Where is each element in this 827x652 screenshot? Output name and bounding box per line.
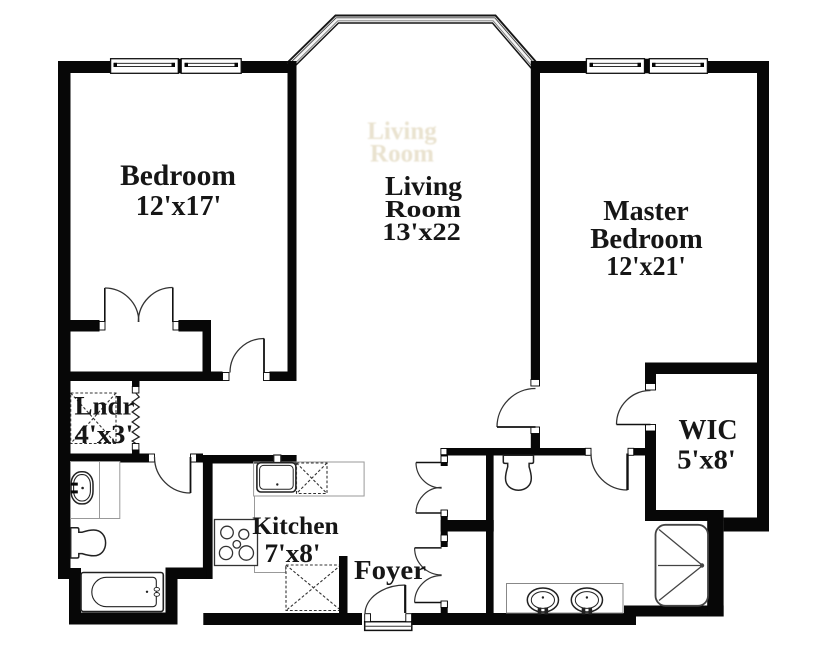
svg-text:7'x8': 7'x8' <box>265 539 321 568</box>
svg-text:WIC: WIC <box>678 415 737 446</box>
svg-text:Bedroom: Bedroom <box>120 160 236 192</box>
svg-text:13'x22: 13'x22 <box>382 217 461 246</box>
svg-text:4'x3': 4'x3' <box>75 420 134 449</box>
svg-text:Foyer: Foyer <box>354 555 426 585</box>
svg-text:5'x8': 5'x8' <box>677 444 736 475</box>
svg-text:12'x21': 12'x21' <box>606 251 686 281</box>
svg-text:12'x17': 12'x17' <box>136 191 222 222</box>
svg-text:Kitchen: Kitchen <box>252 511 338 540</box>
svg-text:Room: Room <box>370 141 434 168</box>
svg-text:Lndr: Lndr <box>75 392 135 421</box>
svg-text:Master: Master <box>603 196 689 227</box>
